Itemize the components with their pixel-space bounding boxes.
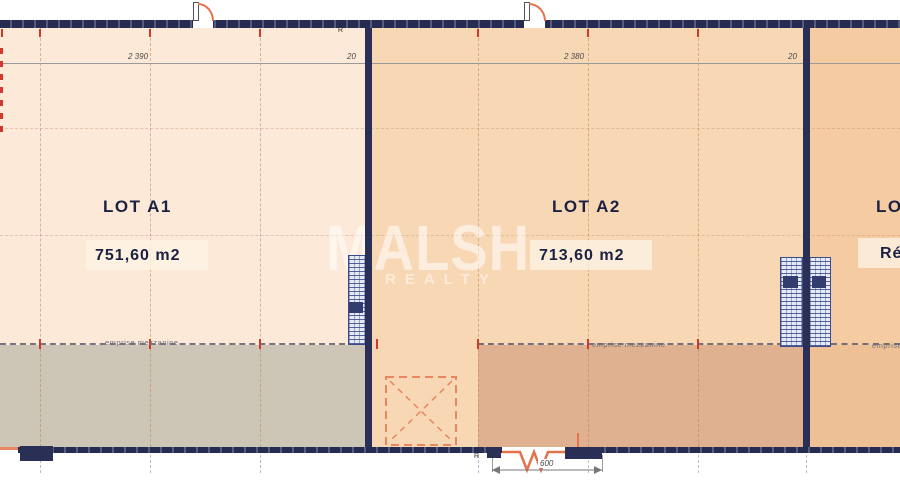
dimension-line [0, 63, 900, 64]
red-tick [697, 339, 699, 349]
reserved-area-x-square [384, 375, 458, 447]
floor-plan-canvas: MALSH REALTY 2 390 20 2 380 20 R R [0, 0, 900, 500]
reference-marker: R [474, 453, 479, 460]
top-exterior-wall [0, 20, 900, 28]
partition-wall-a2-a3 [803, 28, 810, 447]
red-tick [149, 29, 151, 37]
gridline [698, 28, 699, 447]
stair-hatch [809, 257, 831, 347]
lot-a2-area: 713,60 m2 [539, 247, 625, 265]
bottom-exterior-wall [18, 447, 900, 453]
red-tick [587, 29, 589, 37]
red-tick [259, 339, 261, 349]
door-opening [524, 20, 545, 28]
stair-direction-band [812, 276, 826, 288]
red-tick [477, 29, 479, 37]
dimension-a2-width: 2 380 [564, 52, 584, 61]
wall-pier [20, 446, 53, 461]
lot-a1-mezzanine-zone [0, 345, 365, 447]
gridline [260, 28, 261, 447]
mezzanine-boundary-line [0, 343, 365, 345]
red-tick [697, 29, 699, 37]
door-reference-tick [577, 433, 579, 447]
door-swing-arc [198, 3, 214, 21]
red-tick [587, 339, 589, 349]
mezzanine-footprint-label: emprise mezzanine [592, 340, 666, 349]
stair-hatch [348, 255, 366, 345]
plan-cut-edge [0, 48, 3, 138]
red-tick [259, 29, 261, 37]
floor-edge-line [0, 447, 18, 450]
red-tick [1, 29, 3, 37]
red-tick [477, 339, 479, 349]
gridline-stub [806, 455, 807, 473]
gridline [588, 28, 589, 447]
wall-pier [487, 447, 501, 458]
lot-a2-mezzanine-zone [478, 345, 803, 447]
gridline [40, 28, 41, 447]
partition-wall-a1-a2 [365, 28, 372, 447]
stair-direction-band [783, 276, 798, 288]
mezzanine-footprint-label: emprise mezzanine [872, 341, 900, 350]
dimension-a1-width: 2 390 [128, 52, 148, 61]
red-tick [39, 339, 41, 349]
mezzanine-footprint-label: emprise mezzanine [105, 338, 179, 347]
stair-hatch [780, 257, 803, 347]
gridline-stub [260, 455, 261, 473]
red-tick [39, 29, 41, 37]
gridline [0, 128, 900, 129]
lot-a2-label: LOT A2 [552, 197, 621, 217]
dimension-door-width: 600 [538, 459, 555, 468]
red-tick [376, 339, 378, 349]
dimension-wall-thickness: 20 [347, 52, 356, 61]
lot-a3-status: Réservé [880, 245, 900, 263]
gridline-stub [698, 455, 699, 473]
reference-marker: R [338, 27, 343, 34]
watermark-subtitle: REALTY [385, 271, 498, 288]
stair-direction-band [349, 302, 363, 313]
lot-a3-label: LOT A3 [876, 197, 900, 217]
gridline [150, 28, 151, 447]
door-swing-arc [529, 3, 546, 21]
lot-a1-label: LOT A1 [103, 197, 172, 217]
lot-a1-area: 751,60 m2 [95, 247, 181, 265]
dimension-wall-thickness: 20 [788, 52, 797, 61]
door-opening [193, 20, 213, 28]
gridline-stub [150, 455, 151, 473]
lot-a3-mezzanine-zone [810, 345, 900, 447]
